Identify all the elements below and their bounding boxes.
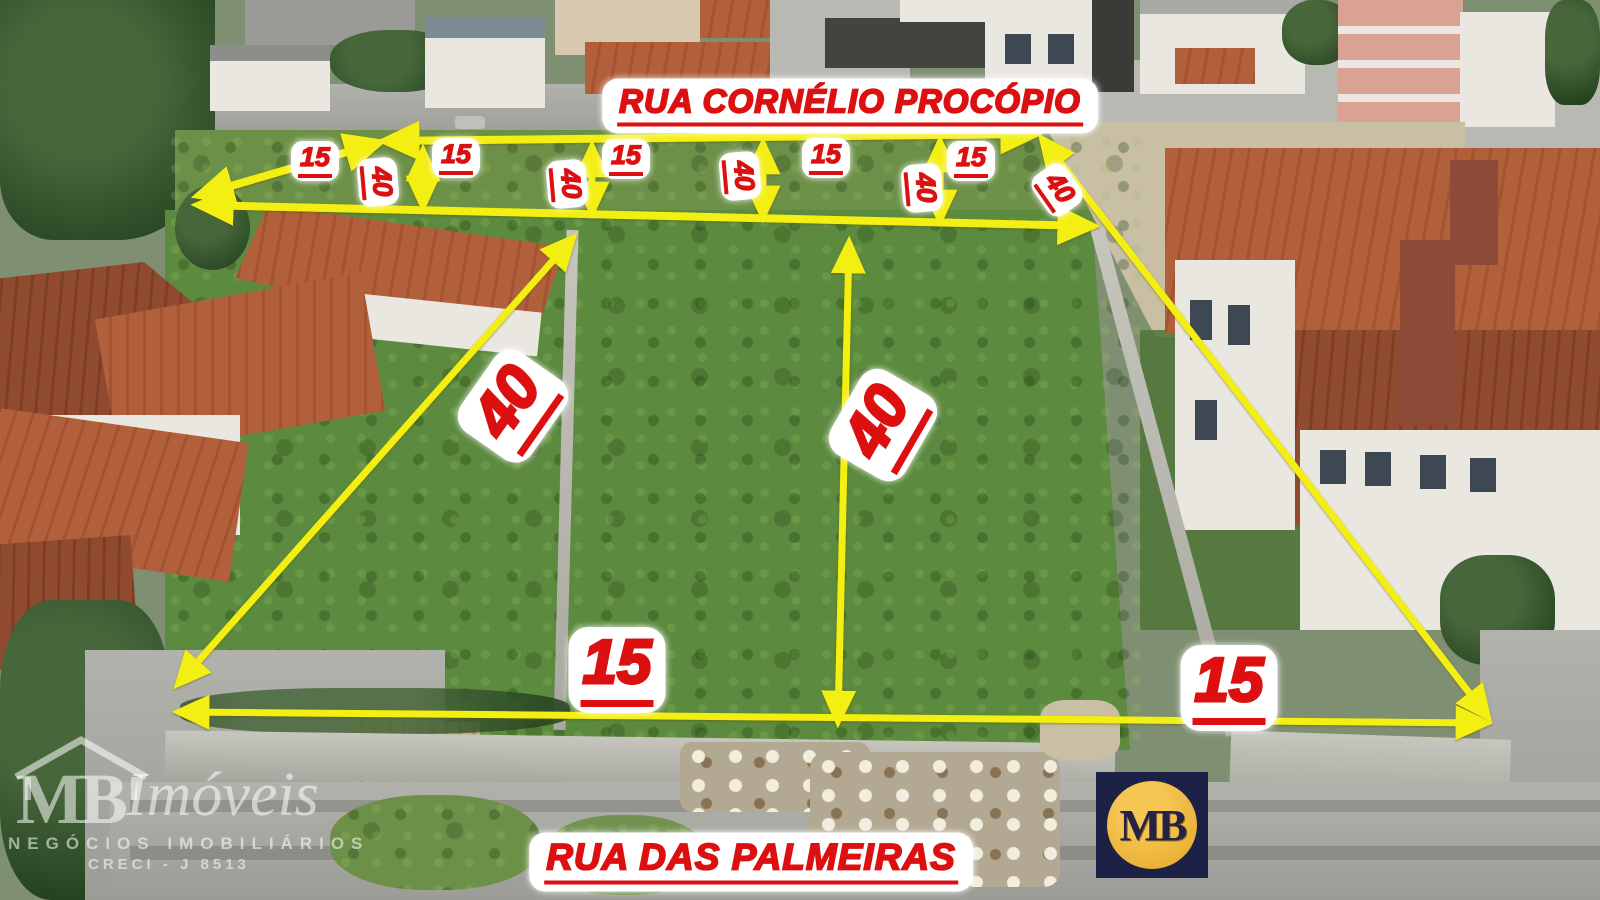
left-lot-frontage-label: 15 [569, 627, 666, 713]
window [1048, 34, 1074, 64]
fence-dark-top [1092, 0, 1134, 92]
palm-tree [175, 185, 250, 270]
lot3-depth-label: 40 [718, 150, 762, 201]
mb-logo: MB [1096, 772, 1208, 878]
lot2-width-label: 15 [432, 138, 480, 178]
window [1320, 450, 1346, 484]
aerial-lot-photo: RUA CORNÉLIO PROCÓPIO RUA DAS PALMEIRAS … [0, 0, 1600, 900]
roof-top-4 [1175, 48, 1255, 84]
house-top-4 [900, 0, 1110, 22]
street-label-top-text: RUA CORNÉLIO PROCÓPIO [617, 85, 1083, 127]
window [1470, 458, 1496, 492]
lot1-depth-label: 40 [356, 156, 400, 207]
street-label-bottom-text: RUA DAS PALMEIRAS [544, 839, 958, 885]
lot5-width-label: 15 [947, 141, 995, 181]
lot4-width-label: 15 [802, 138, 850, 178]
lot4-depth-label: 40 [900, 162, 944, 213]
mb-logo-initials: MB [1120, 800, 1185, 851]
window [1190, 300, 1212, 340]
house-top-1 [210, 45, 330, 111]
mb-logo-circle: MB [1107, 781, 1197, 869]
lot1-width-label: 15 [291, 141, 339, 181]
hedge-row [180, 688, 570, 734]
street-label-top: RUA CORNÉLIO PROCÓPIO [602, 79, 1098, 134]
window [1420, 455, 1446, 489]
lot3-width-label: 15 [602, 139, 650, 179]
window [1228, 305, 1250, 345]
brick-chimney-1 [1400, 240, 1455, 425]
roof-top-3 [700, 0, 775, 38]
house-top-7 [1460, 12, 1555, 127]
dark-wall-top [825, 18, 1005, 68]
brick-chimney-2 [1450, 160, 1498, 265]
dirt-patch [1040, 700, 1120, 760]
trees-top-right [1545, 0, 1600, 105]
street-label-bottom: RUA DAS PALMEIRAS [529, 833, 973, 892]
window [1005, 34, 1031, 64]
window [1365, 452, 1391, 486]
street-grass-patch [330, 795, 540, 890]
right-lot-frontage-label: 15 [1181, 645, 1278, 731]
house-top-2 [425, 18, 545, 108]
lot2-depth-label: 40 [545, 158, 589, 209]
window [1195, 400, 1217, 440]
